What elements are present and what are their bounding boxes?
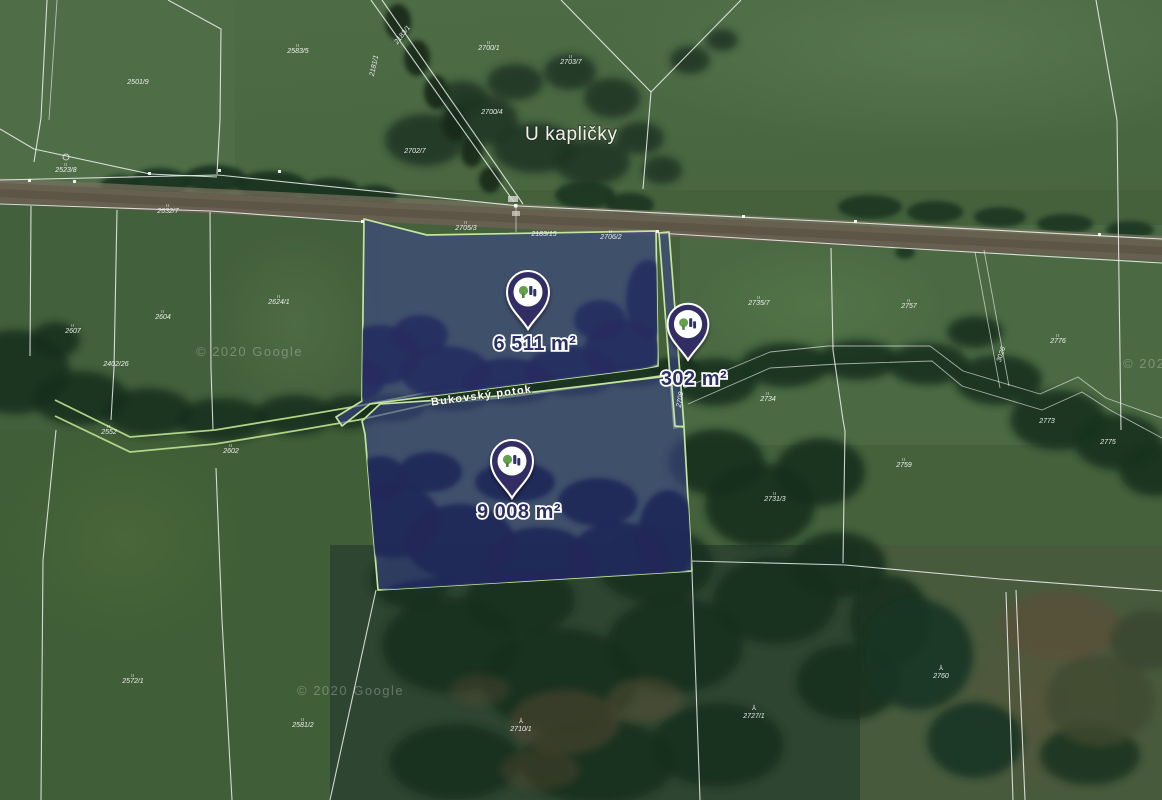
trees-stream-left (0, 322, 380, 442)
parcel-number: 2700/4 (480, 109, 503, 116)
parcel-number: 2735/7 (747, 300, 771, 307)
survey-symbol (63, 154, 69, 160)
map-canvas[interactable]: 2501/9ıı2583/52181/12183/1ıı2700/1ıı2703… (0, 0, 1162, 800)
parcel-number: 2734 (759, 396, 776, 403)
parcel-number: 2727/1 (742, 713, 765, 720)
parcel-number: 2583/5 (286, 48, 309, 55)
tree-symbol: ⅄ (938, 664, 944, 672)
parcel-number: 2572/1 (121, 678, 144, 685)
parcel-number: 2702/7 (403, 148, 427, 155)
pin-disc (498, 447, 527, 476)
parcel-number: 2402/26 (102, 361, 128, 368)
parcel-number: 2604 (154, 314, 171, 321)
parcel-number: 2632/7 (156, 208, 180, 215)
parcel-number: 2710/1 (509, 726, 532, 733)
map-overlay: 2501/9ıı2583/52181/12183/1ıı2700/1ıı2703… (0, 0, 1162, 800)
area-label-upper: 6 511 m² (494, 333, 577, 355)
pin-disc (514, 278, 543, 307)
parcel-number: 2183/15 (530, 231, 556, 238)
parcel-number: 2705/3 (454, 225, 477, 232)
forest-bottom-right (863, 590, 1162, 785)
gate-mark (512, 211, 520, 216)
locality-label: U kapličky (525, 124, 618, 145)
parcel-number: 2581/2 (291, 722, 314, 729)
parcel-number: 2552 (100, 429, 117, 436)
parcel-number: 2706/2 (599, 234, 622, 241)
tree-symbol: ⅄ (518, 717, 524, 725)
parcel-number: 2731/3 (763, 496, 786, 503)
tree-symbol: ⅄ (751, 704, 757, 712)
parcel-number: 2775 (1099, 439, 1116, 446)
parcel-number: 2602 (222, 448, 239, 455)
parcel-number: 2700/1 (477, 45, 500, 52)
area-label-strip: 302 m² (661, 368, 727, 390)
pin-disc (674, 310, 702, 338)
gate-mark (508, 196, 518, 202)
parcel-number: 2607 (64, 328, 82, 335)
parcel-number: 2776 (1049, 338, 1066, 345)
parcel-number: 2760 (932, 673, 949, 680)
google-watermark: © 2020 Google (196, 344, 303, 359)
parcel-number: 2523/8 (54, 167, 77, 174)
google-watermark: © 2020 Google (1123, 356, 1162, 371)
parcel-number: 2757 (900, 303, 918, 310)
parcel-number: 2773 (1038, 418, 1055, 425)
parcel-number: 2181/1 (369, 54, 381, 77)
area-label-lower: 9 008 m² (477, 501, 561, 523)
parcel-number: 2624/1 (267, 299, 290, 306)
parcel-number: 2501/9 (126, 79, 149, 86)
parcel-number: 2703/7 (559, 59, 583, 66)
google-watermark: © 2020 Google (297, 683, 404, 698)
parcel-number: 2708 (676, 391, 686, 409)
parcel-number: 2759 (895, 462, 912, 469)
